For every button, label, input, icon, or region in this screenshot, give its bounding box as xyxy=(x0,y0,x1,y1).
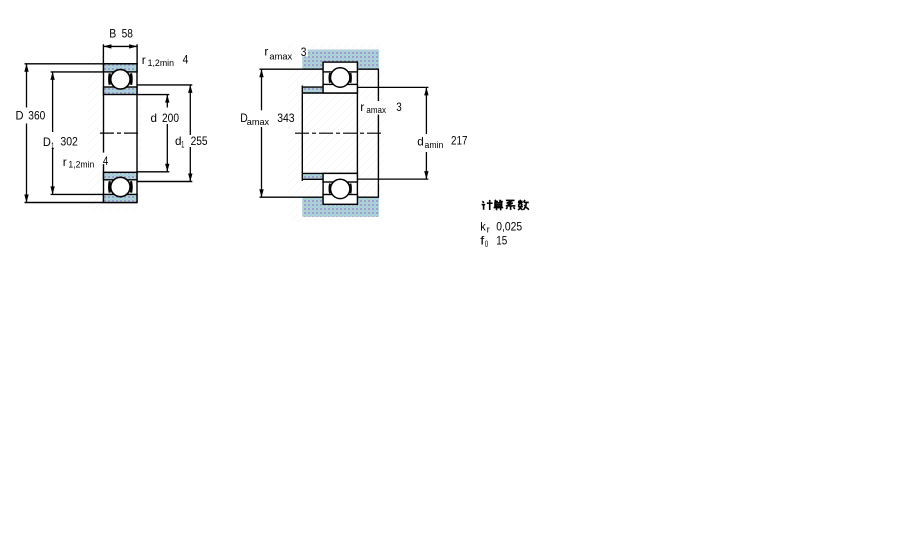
svg-text:15: 15 xyxy=(496,234,507,248)
svg-text:1,2min: 1,2min xyxy=(148,58,174,69)
svg-text:D: D xyxy=(43,135,51,149)
svg-text:200: 200 xyxy=(162,111,179,125)
svg-text:amax: amax xyxy=(247,117,270,128)
svg-text:3: 3 xyxy=(396,100,402,114)
svg-text:1: 1 xyxy=(51,141,54,152)
svg-text:255: 255 xyxy=(191,134,208,148)
svg-text:B: B xyxy=(109,27,116,41)
svg-text:r: r xyxy=(142,53,146,67)
svg-text:58: 58 xyxy=(122,27,134,41)
svg-text:3: 3 xyxy=(301,45,307,59)
svg-text:4: 4 xyxy=(103,154,109,168)
svg-text:amax: amax xyxy=(269,52,292,63)
svg-text:D: D xyxy=(16,108,24,122)
svg-text:r: r xyxy=(360,100,364,114)
svg-text:amin: amin xyxy=(425,140,444,151)
svg-text:d: d xyxy=(417,135,424,149)
svg-text:0: 0 xyxy=(485,239,489,250)
svg-text:0,025: 0,025 xyxy=(496,219,522,233)
svg-text:d: d xyxy=(151,111,158,125)
svg-text:amax: amax xyxy=(366,105,386,116)
svg-text:1: 1 xyxy=(181,140,184,151)
svg-text:302: 302 xyxy=(60,134,78,148)
svg-text:r: r xyxy=(63,155,67,169)
svg-text:4: 4 xyxy=(183,52,189,66)
svg-text:360: 360 xyxy=(28,108,45,122)
svg-text:r: r xyxy=(487,224,490,235)
svg-text:1,2min: 1,2min xyxy=(68,159,94,170)
svg-text:r: r xyxy=(264,44,268,58)
svg-text:217: 217 xyxy=(451,134,468,148)
svg-text:343: 343 xyxy=(277,111,295,125)
